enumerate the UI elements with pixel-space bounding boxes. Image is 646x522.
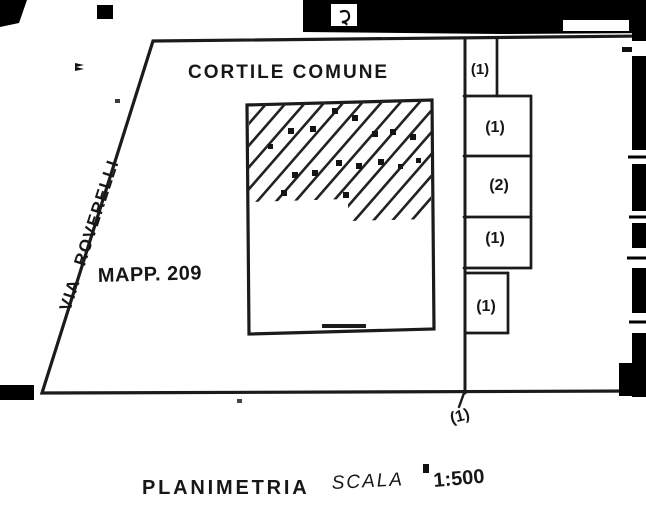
planimetria-scan-page: CORTILE COMUNE VIA ROVERELLI MAPP. 209 (…: [0, 0, 646, 522]
courtyard-label: CORTILE COMUNE: [188, 62, 389, 83]
unit-label-3: (2): [489, 177, 509, 194]
scan-blob-bottom-right: [619, 363, 646, 396]
caption-group: PLANIMETRIA SCALA 1:500: [142, 466, 485, 499]
caption-mark: [423, 464, 429, 473]
unit-label-2: (1): [485, 119, 505, 136]
stray-mark-left: [75, 63, 84, 71]
scan-bar-bottom-left: [0, 385, 34, 400]
scan-notch-top-right: [563, 20, 629, 31]
building-outline: [247, 100, 434, 334]
scale-value-label: 1:500: [433, 466, 486, 492]
planimetria-drawing: CORTILE COMUNE VIA ROVERELLI MAPP. 209 (…: [0, 0, 646, 522]
bottom-dot: [237, 399, 242, 403]
unit-label-1: (1): [471, 61, 489, 78]
access-leader-line: [459, 393, 464, 407]
unit-label-5: (1): [476, 298, 496, 315]
access-unit-label: (1): [448, 406, 471, 427]
scan-notch-r0: [632, 41, 646, 56]
scale-word-label: SCALA: [331, 469, 404, 494]
stray-dot: [115, 99, 120, 103]
scan-corner-top-left: [0, 0, 27, 27]
plan-labels: CORTILE COMUNE VIA ROVERELLI MAPP. 209 (…: [56, 61, 509, 427]
drawing-type-label: PLANIMETRIA: [142, 477, 309, 499]
unit-label-4: (1): [485, 230, 505, 247]
scan-strip-right: [632, 0, 646, 397]
lot-boundary: [42, 36, 641, 393]
scan-notches: [331, 4, 646, 333]
street-name-label: VIA ROVERELLI: [56, 157, 123, 313]
parcel-number-label: MAPP. 209: [98, 262, 203, 287]
scan-speck-top: [97, 5, 113, 19]
